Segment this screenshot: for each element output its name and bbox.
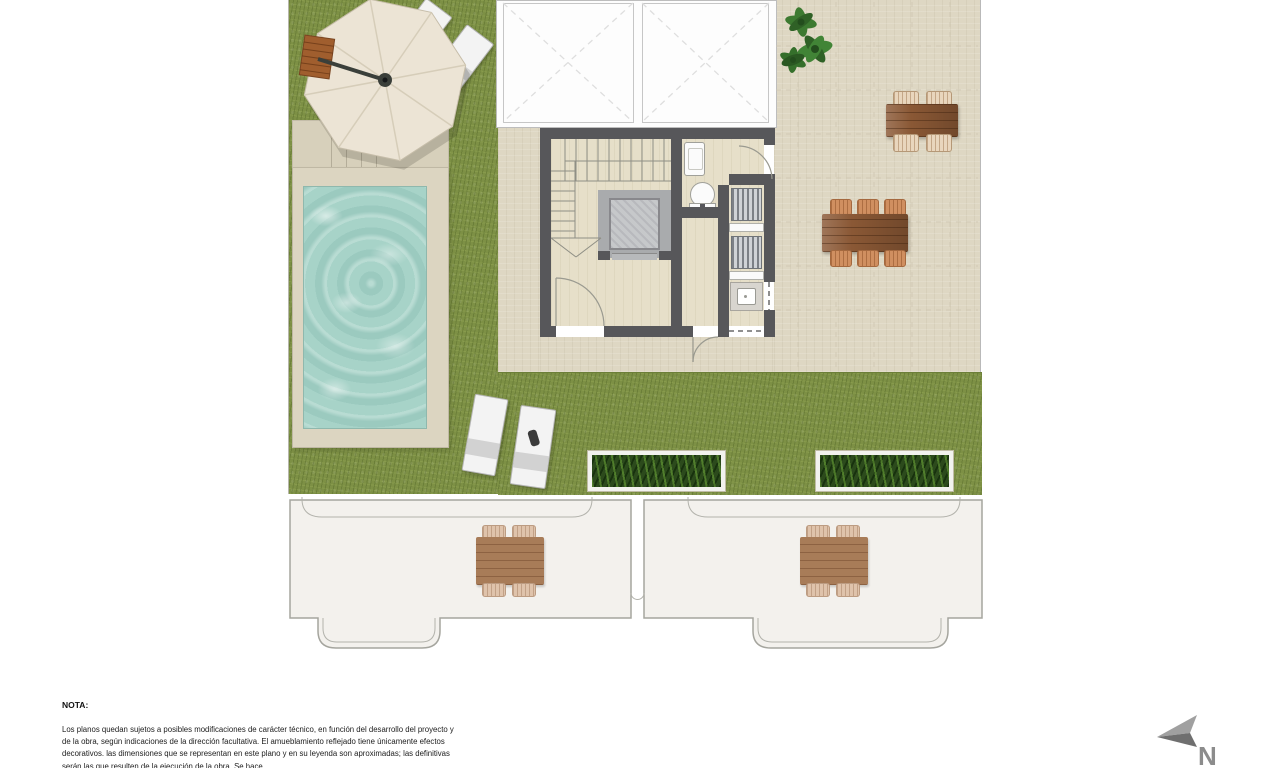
chair <box>482 583 506 597</box>
potted-plant <box>778 6 834 73</box>
lower-dining-table-right <box>800 537 868 585</box>
chair <box>806 583 830 597</box>
chair <box>830 250 852 267</box>
chair <box>893 134 919 152</box>
floor-plan-canvas: NOTA: Los planos quedan sujetos a posibl… <box>0 0 1280 768</box>
chair <box>926 134 952 152</box>
lower-terraces <box>290 500 982 648</box>
plan-linework <box>0 0 1280 768</box>
staircase <box>551 139 671 257</box>
north-label: N <box>1198 741 1217 768</box>
towel <box>527 429 540 447</box>
chair <box>884 250 906 267</box>
dining-table-4-seats <box>886 104 958 137</box>
chair <box>512 583 536 597</box>
lower-terrace-left <box>290 500 631 648</box>
lower-dining-table-left <box>476 537 544 585</box>
parasol <box>285 0 500 175</box>
note-body: Los planos quedan sujetos a posibles mod… <box>62 724 456 768</box>
chair <box>836 583 860 597</box>
north-arrow-icon: N <box>1140 690 1280 768</box>
side-table <box>299 35 334 79</box>
note-title: NOTA: <box>62 700 88 710</box>
chair <box>857 250 879 267</box>
dining-table-6-seats <box>822 214 908 252</box>
